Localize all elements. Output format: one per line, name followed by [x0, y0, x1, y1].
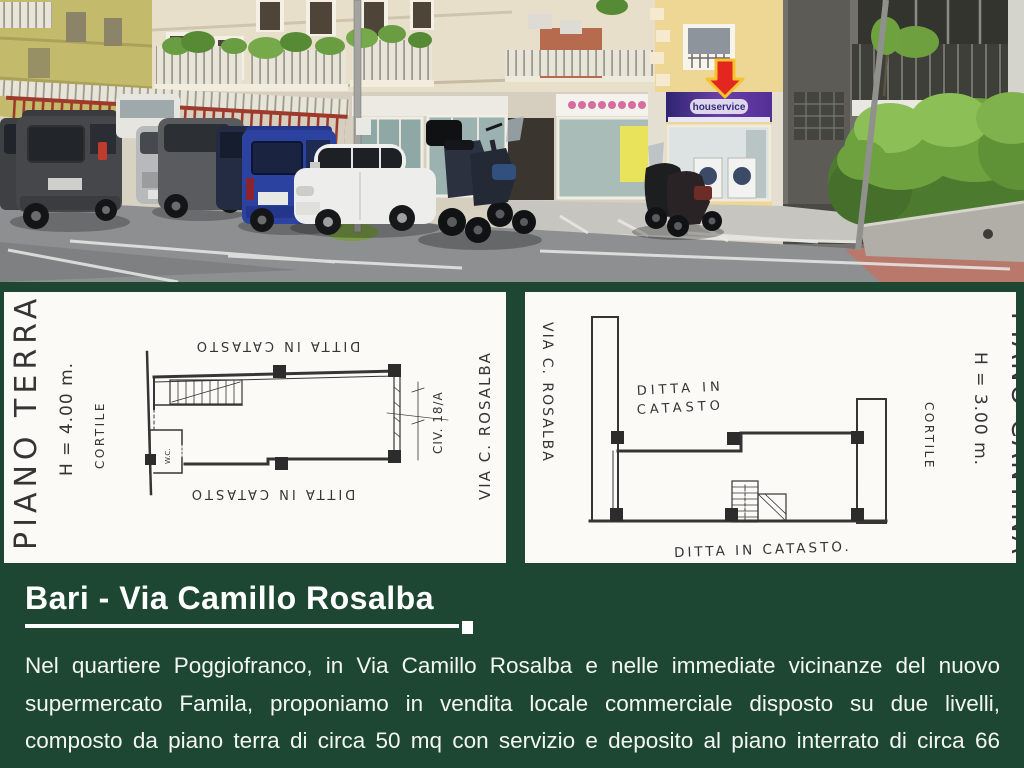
listing-flyer: houservice — [0, 0, 1024, 768]
ditta-bottom-label: DITTA IN CATASTO — [189, 486, 355, 501]
description-line: mq . L’immobile si presenta in buono sta… — [25, 760, 1000, 768]
title-underline — [25, 621, 1000, 637]
courtyard-label: CORTILE — [922, 402, 936, 470]
description-line: composto da piano terra di circa 50 mq c… — [25, 722, 1000, 760]
description-line: supermercato Famila, proponiamo in vendi… — [25, 685, 1000, 723]
civic-number-label: CIV. 18/A — [431, 391, 445, 454]
floor-plan-piano-cantina: VIA C. ROSALBA DITTA IN CATASTO CORTILE … — [525, 292, 1016, 563]
wc-label: W.C. — [164, 449, 172, 464]
piano-terra-drawing: PIANO TERRA H = 4.00 m. CORTILE DITTA IN… — [4, 292, 506, 563]
underline-endcap — [462, 621, 473, 634]
piano-cantina-drawing: VIA C. ROSALBA DITTA IN CATASTO CORTILE … — [525, 292, 1016, 563]
floor-plan-piano-terra: PIANO TERRA H = 4.00 m. CORTILE DITTA IN… — [4, 292, 506, 563]
pillars — [610, 431, 864, 521]
plan-title: PIANO CANTINA — [1005, 312, 1016, 557]
street-photo: houservice — [0, 0, 1024, 282]
underline-bar — [25, 624, 459, 628]
laundromat-sign-text: houservice — [693, 102, 746, 113]
description-line: Nel quartiere Poggiofranco, in Via Camil… — [25, 647, 1000, 685]
ditta-top-label: DITTA IN CATASTO — [194, 338, 360, 353]
ditta-bottom-label: DITTA IN CATASTO. — [674, 539, 852, 561]
street-photo-illustration: houservice — [0, 0, 1024, 282]
ditta-inner-line1: DITTA IN — [636, 379, 724, 399]
yellow-poster — [620, 126, 648, 182]
ditta-inner-line2: CATASTO — [636, 398, 724, 418]
shop-sign-band — [352, 96, 508, 116]
street-label: VIA C. ROSALBA — [539, 322, 555, 463]
height-label: H = 3.00 m. — [970, 352, 990, 466]
plan-title: PIANO TERRA — [9, 294, 44, 550]
listing-caption: Bari - Via Camillo Rosalba Nel quartiere… — [25, 580, 1000, 768]
height-label: H = 4.00 m. — [57, 362, 77, 476]
car-jeep — [10, 110, 130, 232]
street-label: VIA C. ROSALBA — [476, 351, 494, 500]
page-title: Bari - Via Camillo Rosalba — [25, 580, 1000, 616]
listing-description: Nel quartiere Poggiofranco, in Via Camil… — [25, 647, 1000, 768]
courtyard-label: CORTILE — [93, 401, 107, 469]
